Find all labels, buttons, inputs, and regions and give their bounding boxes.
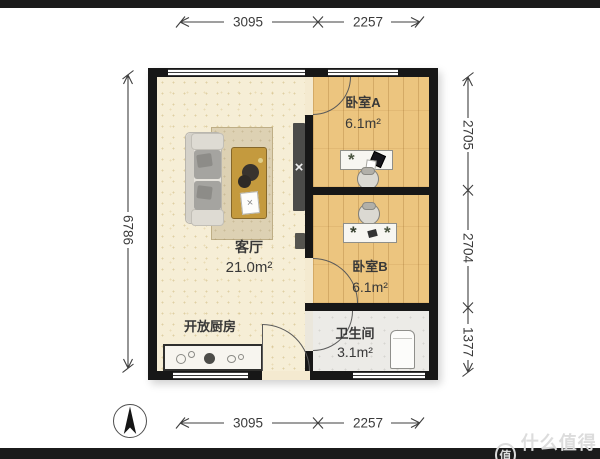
tv-side-cabinet xyxy=(295,233,305,249)
room-area: 3.1m² xyxy=(335,343,374,361)
dim-right-bottom: 1377 xyxy=(461,327,476,357)
smzdm-logo-icon: 值 xyxy=(495,443,516,459)
room-area: 6.1m² xyxy=(352,277,388,297)
washing-machine xyxy=(390,330,415,369)
wall-right xyxy=(429,68,438,380)
dimension-left: 6786 xyxy=(121,71,136,373)
desk-item xyxy=(367,229,378,238)
room-name: 卧室A xyxy=(345,94,381,113)
kitchen-counter xyxy=(163,344,263,371)
dimension-bottom: 3095 2257 xyxy=(176,416,424,431)
table-decor-bowl xyxy=(238,175,251,188)
entry-door-opening xyxy=(262,371,310,380)
sofa-armrest xyxy=(191,209,224,226)
wall-left xyxy=(148,68,157,380)
watermark-text: 什么值得买 xyxy=(521,429,600,459)
table-decor-dot xyxy=(258,158,263,163)
coffee-table xyxy=(231,147,267,219)
table-magazine xyxy=(240,191,260,215)
room-name: 卫生间 xyxy=(335,326,374,343)
dim-right-middle: 2704 xyxy=(461,233,476,264)
bedroom-a-door-opening xyxy=(305,77,313,115)
plant-icon xyxy=(384,228,394,238)
bedroom-b-label: 卧室B 6.1m² xyxy=(352,258,388,297)
wall-divider-bathroom xyxy=(305,303,429,311)
plant-icon xyxy=(348,155,358,165)
dim-bottom-right: 2257 xyxy=(353,416,383,431)
compass-north-icon xyxy=(114,405,147,438)
top-border-bar xyxy=(0,0,600,8)
sofa-pillow xyxy=(196,185,212,200)
sink-icon xyxy=(176,354,186,364)
bathroom-door-opening xyxy=(305,311,313,351)
bedroom-a-label: 卧室A 6.1m² xyxy=(345,94,381,133)
stove-burner-icon xyxy=(204,353,215,364)
sofa xyxy=(185,132,222,224)
window-top-bedroom-a xyxy=(328,69,398,76)
floorplan-page: 3095 2257 3095 2257 6786 2705 2704 1377 xyxy=(0,0,600,459)
dim-right-top: 2705 xyxy=(461,120,476,150)
tv-unit xyxy=(293,123,305,211)
room-area: 6.1m² xyxy=(345,113,381,133)
room-name: 卧室B xyxy=(352,258,388,277)
dimension-top: 3095 2257 xyxy=(176,15,424,30)
sofa-armrest xyxy=(191,133,224,150)
sink-icon xyxy=(188,351,195,358)
window-bottom-bathroom xyxy=(353,372,425,379)
dim-top-right: 2257 xyxy=(353,15,383,30)
wall-divider-bedrooms xyxy=(305,187,429,195)
bedroom-b-desk xyxy=(343,223,397,243)
bedroom-b-chair xyxy=(358,203,380,225)
room-name: 开放厨房 xyxy=(184,318,236,337)
room-area: 21.0m² xyxy=(226,257,273,279)
stove-burner-icon xyxy=(238,354,244,360)
window-top-living xyxy=(168,69,305,76)
dimension-right: 2705 2704 1377 xyxy=(461,73,476,377)
kitchen-label: 开放厨房 xyxy=(184,318,236,337)
stove-burner-icon xyxy=(227,355,236,363)
window-bottom-kitchen xyxy=(173,372,248,379)
floorplan-drawing: 客厅 21.0m² 开放厨房 卧室A 6.1m² 卧室B 6.1m² 卫生间 3… xyxy=(148,68,438,380)
dim-top-left: 3095 xyxy=(233,15,263,30)
watermark: 值 什么值得买 xyxy=(495,429,600,459)
bathroom-label: 卫生间 3.1m² xyxy=(335,326,374,361)
plant-icon xyxy=(350,228,360,238)
sofa-pillow xyxy=(196,153,213,168)
bedroom-b-door-opening xyxy=(305,258,313,303)
living-room-label: 客厅 21.0m² xyxy=(226,237,273,279)
dim-left: 6786 xyxy=(121,215,136,245)
dim-bottom-left: 3095 xyxy=(233,416,263,431)
room-name: 客厅 xyxy=(226,237,273,257)
